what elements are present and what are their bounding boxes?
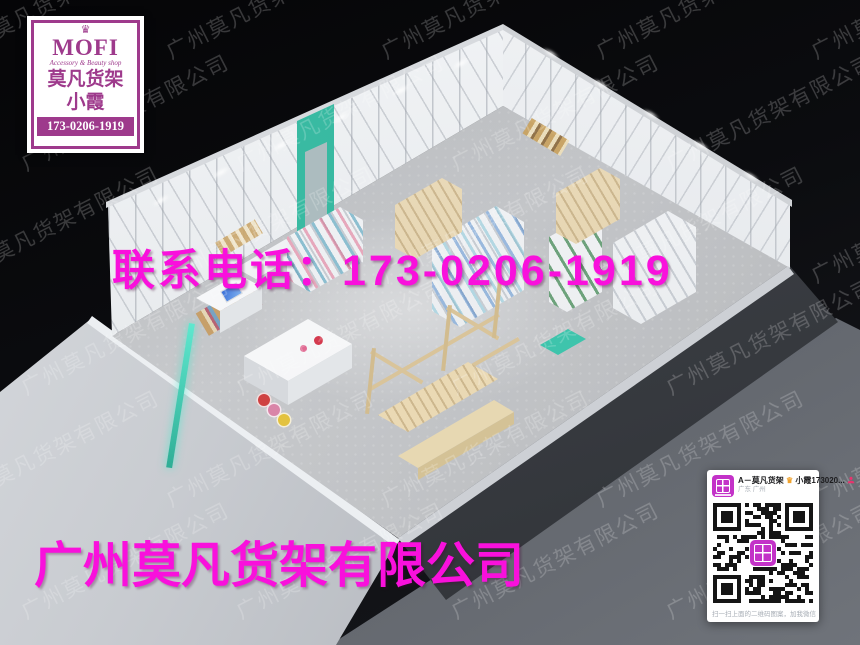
qr-module (753, 535, 757, 539)
phone-number: 173-0206-1919 (37, 117, 134, 136)
logo-frame: ♛ MOFI Accessory & Beauty shop 莫凡货架 小霞 1… (31, 20, 140, 149)
shelf-logo-icon (754, 544, 772, 562)
qr-module (809, 543, 813, 547)
store-render-canvas: 广州莫凡货架有限公司广州莫凡货架有限公司广州莫凡货架有限公司广州莫凡货架有限公司… (0, 0, 860, 645)
qr-module (805, 575, 809, 579)
qr-contact-info: A－莫凡货架 ♛ 小霞173020... 广东 广州 (738, 475, 855, 494)
contact-name-row: A－莫凡货架 ♛ 小霞173020... (738, 475, 855, 486)
qr-finder-pattern (713, 503, 741, 531)
company-name-cn: 莫凡货架 (34, 68, 137, 91)
contact-person-icon (847, 476, 855, 484)
qr-module (777, 507, 781, 511)
red-product (314, 336, 323, 345)
qr-center-logo (750, 540, 776, 566)
qr-module (809, 563, 813, 567)
qr-module (745, 539, 749, 543)
crown-icon: ♛ (786, 476, 793, 485)
brand-tagline: Accessory & Beauty shop (34, 59, 137, 68)
brand-logo-card: ♛ MOFI Accessory & Beauty shop 莫凡货架 小霞 1… (27, 16, 144, 153)
qr-module (809, 591, 813, 595)
contact-suffix: 小霞173020... (795, 476, 844, 485)
hat-display-yellow (278, 414, 290, 426)
qr-module (801, 599, 805, 603)
qr-module (721, 551, 725, 555)
hat-display-red (258, 394, 270, 406)
qr-module (733, 567, 737, 571)
avatar (712, 475, 734, 497)
qr-module (761, 583, 765, 587)
qr-module (761, 535, 765, 539)
qr-module (797, 587, 801, 591)
qr-module (809, 555, 813, 559)
brand-name: MOFI (34, 36, 137, 59)
qr-module (725, 539, 729, 543)
contact-title: A－莫凡货架 (738, 476, 784, 485)
qr-scan-caption: 扫一扫上面的二维码图案，加我微信 (712, 608, 814, 618)
pink-product (300, 345, 307, 352)
watermark-text: 广州莫凡货架有限公司 (806, 158, 860, 289)
shelf-logo-icon (716, 479, 730, 493)
qr-module (809, 535, 813, 539)
qr-module (745, 555, 749, 559)
hat-display-pink (268, 404, 280, 416)
qr-card-header: A－莫凡货架 ♛ 小霞173020... 广东 广州 (712, 475, 814, 497)
watermark-text: 广州莫凡货架有限公司 (806, 0, 860, 66)
company-name-overlay: 广州莫凡货架有限公司 (34, 526, 524, 597)
contact-name: 小霞 (34, 91, 137, 114)
qr-module (785, 535, 789, 539)
qr-finder-pattern (713, 575, 741, 603)
qr-module (769, 579, 773, 583)
contact-location: 广东 广州 (738, 486, 855, 494)
qr-module (777, 515, 781, 519)
qr-module (725, 567, 729, 571)
qr-code (713, 503, 813, 603)
wechat-qr-card: A－莫凡货架 ♛ 小霞173020... 广东 广州 扫一扫上面的二维码图案，加… (707, 470, 819, 622)
qr-finder-pattern (785, 503, 813, 531)
qr-module (777, 523, 781, 527)
watermark-text: 广州莫凡货架有限公司 (161, 0, 380, 66)
contact-phone-overlay: 联系电话：173-0206-1919 (112, 236, 673, 298)
watermark-text: 广州莫凡货架有限公司 (591, 0, 810, 66)
qr-module (745, 547, 749, 551)
qr-module (757, 515, 761, 519)
qr-module (797, 551, 801, 555)
qr-module (745, 503, 749, 507)
qr-module (809, 599, 813, 603)
qr-module (781, 551, 785, 555)
qr-module (769, 571, 773, 575)
avatar-text-bar (715, 494, 731, 496)
qr-module (793, 543, 797, 547)
qr-module (777, 599, 781, 603)
qr-module (717, 543, 721, 547)
qr-module (737, 559, 741, 563)
qr-module (805, 567, 809, 571)
qr-module (717, 555, 721, 559)
qr-module (729, 547, 733, 551)
qr-module (789, 591, 793, 595)
